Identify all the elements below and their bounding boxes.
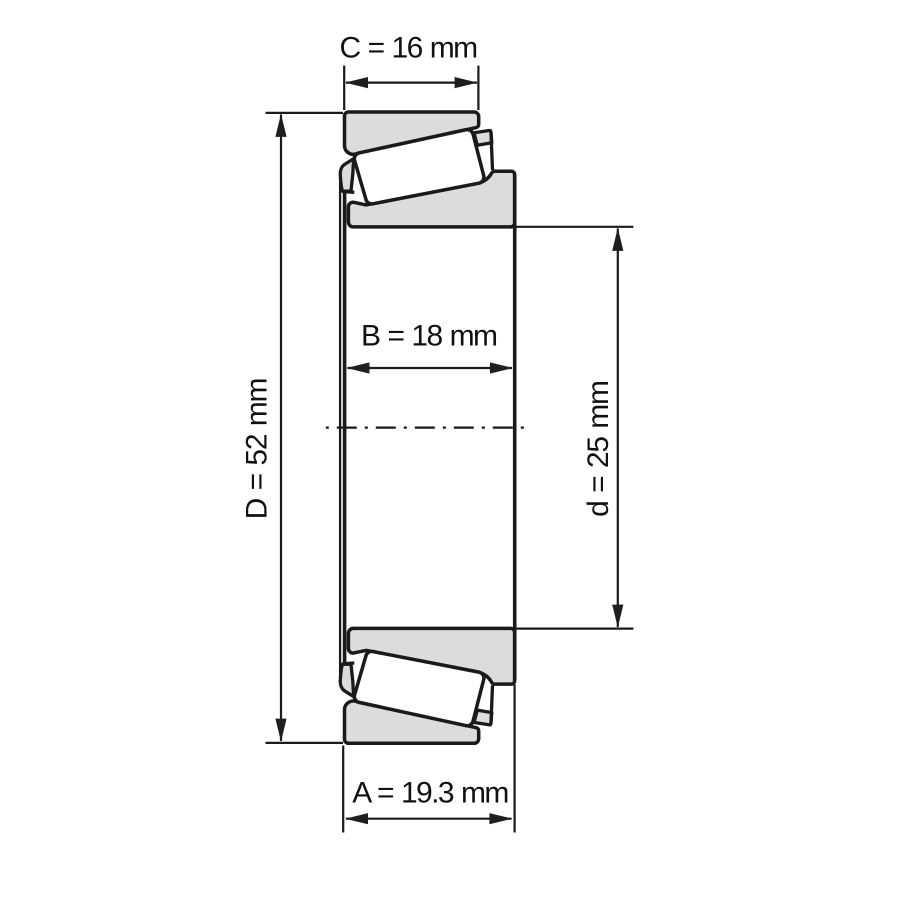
svg-text:C = 16 mm: C = 16 mm — [339, 32, 477, 65]
svg-text:B = 18 mm: B = 18 mm — [361, 320, 497, 353]
svg-text:d = 25 mm: d = 25 mm — [582, 381, 615, 517]
svg-text:D = 52 mm: D = 52 mm — [241, 378, 274, 519]
svg-text:A = 19.3 mm: A = 19.3 mm — [352, 776, 508, 809]
